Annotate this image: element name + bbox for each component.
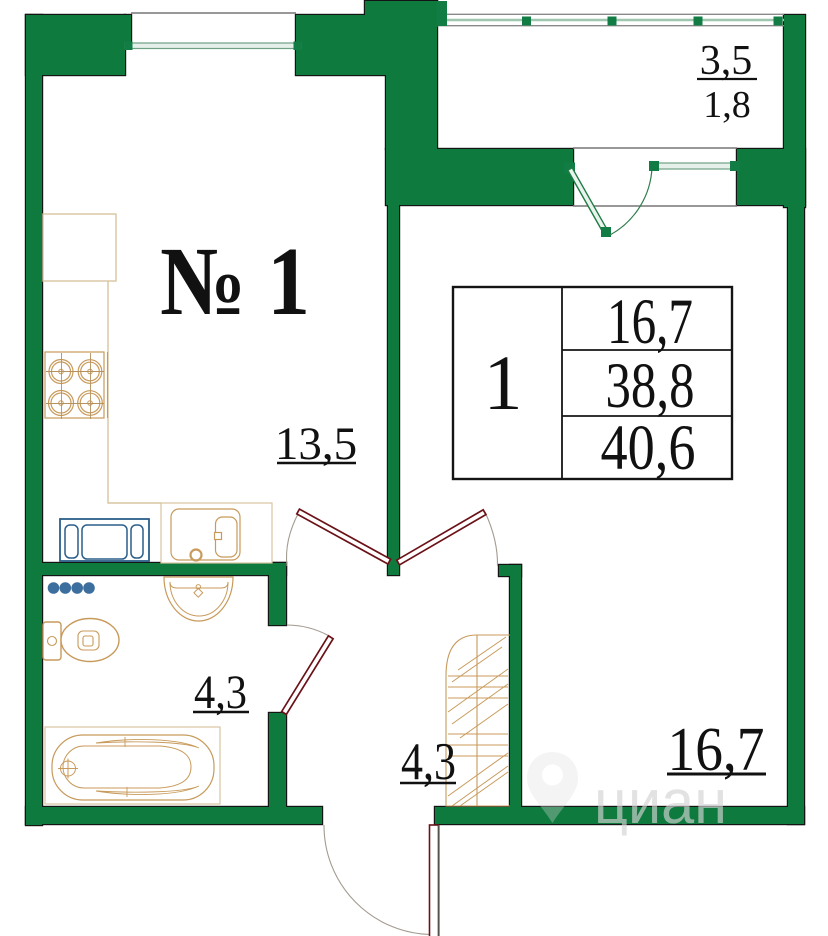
svg-text:3,5: 3,5 <box>700 38 753 84</box>
svg-text:1,8: 1,8 <box>703 84 751 126</box>
svg-text:циан: циан <box>594 768 727 837</box>
svg-text:1: 1 <box>484 339 523 426</box>
svg-text:№ 1: № 1 <box>160 228 310 336</box>
svg-text:16,7: 16,7 <box>607 286 693 358</box>
svg-text:40,6: 40,6 <box>601 412 696 484</box>
